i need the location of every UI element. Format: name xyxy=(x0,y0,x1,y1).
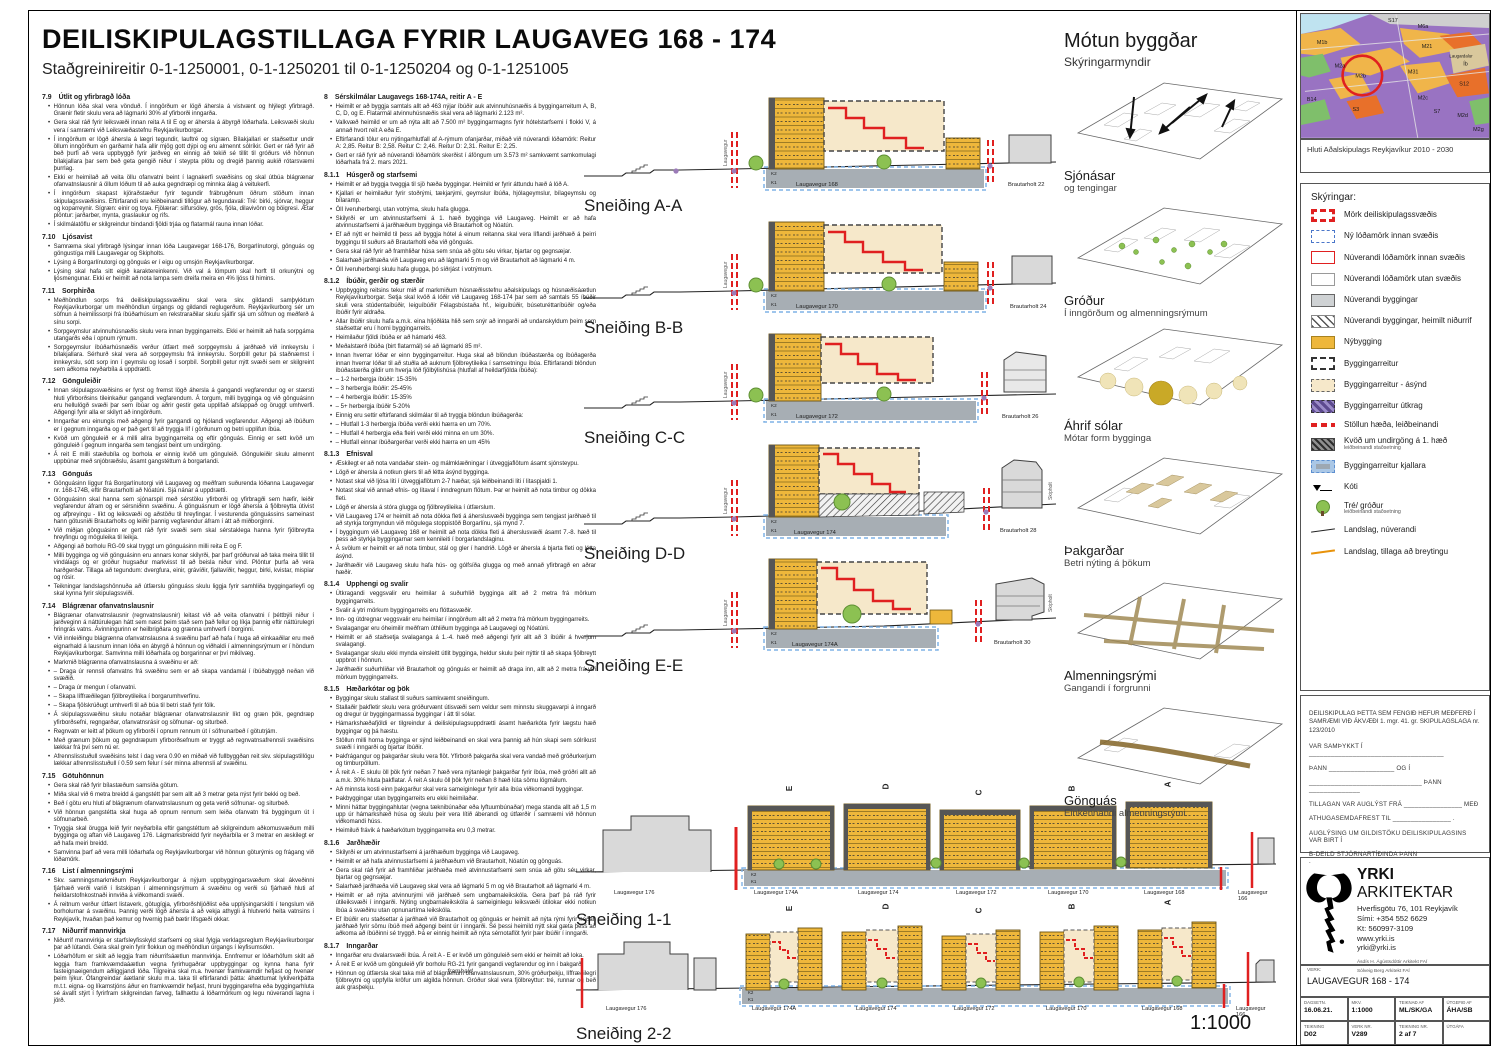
bullet-text: Gert er ráð fyrir að núverandi lóðamörk … xyxy=(336,153,596,168)
bullet-text: Þakbyggingar utan byggingarreits eru ekk… xyxy=(336,796,479,803)
cell-value: D02 xyxy=(1304,1031,1344,1038)
bullet: • Svalagangar eru óheimilir meðfram úthl… xyxy=(330,626,596,633)
regulation-section: 7.16 List í almenningsrými • Skv. samnin… xyxy=(42,868,314,924)
firm-kt: Kt: 560997-3109 xyxy=(1357,924,1483,934)
bullet: • Heimilaður fjöldi íbúða er að hámarki … xyxy=(330,335,596,342)
right-building-label: Brautarholt 28 xyxy=(1000,528,1036,534)
bullet: • Beð í götu eru hluti af blágrænum ofan… xyxy=(48,801,314,808)
section-bullets: • Gera skal ráð fyrir bílastæðum samsíða… xyxy=(42,783,314,865)
bullet-text: Heimilt er að byggja tveggja til sjö hæð… xyxy=(336,182,569,189)
section-bullets: • Niðurrif mannvirkja er starfsleyfissky… xyxy=(42,938,314,1006)
svg-text:K2: K2 xyxy=(751,872,757,877)
svg-text:K1: K1 xyxy=(751,879,757,884)
section-title: Gönguás xyxy=(62,471,92,479)
legend-label: Byggingarreitur xyxy=(1344,359,1398,368)
axonometric-view-icon xyxy=(1064,200,1290,286)
section-CC-canvas: Laugavegur K2 K1 Laugavegur 172 Brautarh… xyxy=(584,326,1056,426)
bullet: • Heimiluð frávik á hæðarkótum byggingar… xyxy=(330,828,596,835)
bullet-text: – 3 herbergja íbúðir: 25-45% xyxy=(336,386,412,393)
bullet-text: Kjallari er heimilaður fyrir stoðrými, t… xyxy=(336,191,596,206)
section-number: 8.1.1 xyxy=(324,172,339,180)
svg-text:Laugavegur: Laugavegur xyxy=(723,261,729,288)
bullet-text: Gönguásinn liggur frá Borgarlínutorgi vi… xyxy=(54,481,314,496)
title-block-cell: TEIKNAÐ AF ML/SK/GA xyxy=(1395,997,1443,1021)
bullet-text: Skilyrði er um atvinnustarfsemi á 1. hæð… xyxy=(336,216,596,231)
bullet-text: Við miðjan gönguásinn er gert ráð fyrir … xyxy=(54,528,314,543)
approval-block: DEILISKIPULAG ÞETTA SEM FENGIÐ HEFUR MEÐ… xyxy=(1300,695,1490,853)
legend-swatch-icon xyxy=(1311,273,1335,286)
section-title: Upphengi og svalir xyxy=(346,581,408,589)
legend-item: Landslag, núverandi xyxy=(1311,524,1479,537)
svg-text:K1: K1 xyxy=(771,640,777,645)
bullet-text: Inngarðar eru einungis með aðgengi fyrir… xyxy=(54,419,314,434)
bullet: • Inngarðar eru dvalarsvæði íbúa. Á reit… xyxy=(330,953,596,960)
section-number: 7.9 xyxy=(42,94,52,102)
bullet: • Gera skal ráð fyrir að framhliðar húsa… xyxy=(330,249,596,256)
section-title: Efnisval xyxy=(346,451,372,459)
section-title: Ljósavist xyxy=(62,234,92,242)
legend-label: Byggingarreitur - ásýnd xyxy=(1344,380,1427,389)
svg-text:M1b: M1b xyxy=(1317,40,1328,46)
legend-swatch-icon xyxy=(1311,400,1335,413)
svg-text:M2c: M2c xyxy=(1418,95,1429,101)
section-AA-canvas: Laugavegur K2 K1 Laugavegur 168 Brautarh… xyxy=(584,92,1056,194)
bullet-text: Á skipulagssvæðinu skulu notaðar blágræn… xyxy=(54,712,314,727)
scale-text: 1:1000 xyxy=(1190,1012,1251,1035)
svg-text:S12: S12 xyxy=(1459,81,1469,87)
section-DD-canvas: Laugavegur K2 K1 Laugavegur 174 Brautarh… xyxy=(584,440,1056,542)
approval-line: VAR SAMÞYKKT Í _________________________… xyxy=(1309,743,1481,757)
bullet: • Kjallari er heimilaður fyrir stoðrými,… xyxy=(330,191,596,206)
svg-text:Laugavegur: Laugavegur xyxy=(723,487,729,514)
bullet-text: Ef að nýtt er heimild til þess að byggja… xyxy=(336,232,596,247)
street-label: Laugavegur 168 xyxy=(796,182,838,188)
section-title: Götuhönnun xyxy=(62,773,103,781)
bullet: • Á reitnum verður útfært listaverk, göt… xyxy=(48,902,314,924)
legend-item: Nýbygging xyxy=(1311,336,1479,349)
svg-text:M21: M21 xyxy=(1422,44,1433,50)
bullet: • Blágrænar ofanvatnslausnir (regnvatnsl… xyxy=(48,613,314,635)
legend-item: Ný lóðamörk innan svæðis xyxy=(1311,230,1479,243)
bullet: • Jarðhæðir við Laugaveg skulu hafa hús-… xyxy=(330,563,596,578)
bullet-text: Sorpgeymslur íbúðarhúsnæðis verður útfær… xyxy=(54,345,314,374)
location-map: S17 M6a M1b M2a M2b M21 M31 M2c Laugarda… xyxy=(1300,13,1490,139)
bullet: • Heimilt er að byggja tveggja til sjö h… xyxy=(330,182,596,189)
legend-item: Stöllun hæða, leiðbeinandi xyxy=(1311,421,1479,429)
bullet-text: – Skapa fjölskrúðugt umhverfi til að búa… xyxy=(54,703,216,710)
zoning-map: S17 M6a M1b M2a M2b M21 M31 M2c Laugarda… xyxy=(1301,14,1489,138)
section-number: 7.17 xyxy=(42,928,55,936)
legend-swatch-icon xyxy=(1311,481,1335,494)
bullet: • Gönguásinn liggur frá Borgarlínutorgi … xyxy=(48,481,314,496)
bullet: • Salarhæð jarðhæða við Laugaveg skal ve… xyxy=(330,884,596,891)
section-bullets: • Útkragandi veggsvalir eru heimilar á s… xyxy=(324,591,596,682)
block-E xyxy=(748,806,834,870)
bullet: • Miða skal við 6 metra breidd á gangsté… xyxy=(48,792,314,799)
svg-text:K2: K2 xyxy=(771,171,777,176)
bullet-text: Lögð er áhersla á notkun glers til að lé… xyxy=(336,470,490,477)
svg-text:B14: B14 xyxy=(1307,97,1317,103)
bullet-text: Kvöð um gönguleið er á milli allra byggi… xyxy=(54,436,314,451)
bullet: • Samræma skal yfirbragð lýsingar innan … xyxy=(48,244,314,259)
right-building-label: Brautarholt 30 xyxy=(994,640,1030,646)
bullet: • Svalagangar skulu ekki mynda einsleitt… xyxy=(330,651,596,666)
legend-item: Byggingarreitur kjallara xyxy=(1311,460,1479,473)
legend-swatch-icon xyxy=(1311,357,1335,370)
bullet-text: Samvinna þarf að vera milli lóðarhafa og… xyxy=(54,850,314,865)
section-title: Sérskilmálar Laugavegs 168-174A, reitir … xyxy=(335,94,482,102)
right-building-label: Brautarholt 26 xyxy=(1002,414,1038,420)
bullet-text: Gera skal ráð fyrir leiksvæði innan reit… xyxy=(54,120,314,135)
bullet: • Á reit E milli stæðubíla og borhola er… xyxy=(48,452,314,467)
svg-text:K2: K2 xyxy=(771,631,777,636)
legend-swatch-icon xyxy=(1311,524,1335,537)
bullet-text: Hönnun lóða skal vera vönduð. Í inngörðu… xyxy=(54,104,314,119)
street-label: Laugavegur 174A xyxy=(792,642,838,648)
bullet-text: Teikningar landslagshönnuða að útfærslu … xyxy=(54,584,314,599)
bullet: • Heimilt er að nýta atvinnurými við jar… xyxy=(330,893,596,915)
bullet: • Lýsing á Borgarlínutorgi og gönguás er… xyxy=(48,260,314,267)
legend-item: Tré/ gróður leiðbeinandi staðsetning xyxy=(1311,502,1479,516)
legend-item: Núverandi byggingar, heimilt niðurrif xyxy=(1311,315,1479,328)
project-name-row: VERK: LAUGAVEGUR 168 - 174 xyxy=(1300,965,1490,997)
bullet-text: Á reitnum verður útfært listaverk, götug… xyxy=(54,902,314,924)
svg-text:K2: K2 xyxy=(771,403,777,408)
firm-name-bold: YRKI xyxy=(1357,866,1394,883)
section-number: 7.10 xyxy=(42,234,55,242)
svg-text:Laugavegur: Laugavegur xyxy=(723,371,729,398)
svg-text:K1: K1 xyxy=(771,302,777,307)
bullet-text: Ef íbúðir eru staðsettar á jarðhæð við B… xyxy=(336,917,596,939)
bullet: • Allar íbúðir skulu hafa a.m.k. eina hl… xyxy=(330,319,596,334)
section-label: Sneiðing 2-2 xyxy=(576,1024,1276,1044)
legend-label: Landslag, tillaga að breytingu xyxy=(1344,547,1448,556)
regulation-section: 7.10 Ljósavist • Samræma skal yfirbragð … xyxy=(42,234,314,284)
bullet: • – Hlutfall 1-3 herbergja íbúða verði e… xyxy=(330,422,596,429)
bullet-text: – Draga úr rennsli ofanvatns frá svæðinu… xyxy=(54,669,314,684)
cell-label: DAGSETN. xyxy=(1304,1000,1344,1005)
bullet: • Notast skal við annað efnis- og litava… xyxy=(330,488,596,503)
bullet: • Teikningar landslagshönnuða að útfærsl… xyxy=(48,584,314,599)
bullet-text: Lýsing skal hafa sitt eigið karaktereink… xyxy=(54,269,314,284)
bullet: • – Draga úr rennsli ofanvatns frá svæði… xyxy=(48,669,314,684)
title-block-cell: ÚTGEFIÐ AF ÁHA/SB xyxy=(1443,997,1491,1021)
street-label: Laugavegur 174 xyxy=(794,530,837,536)
section-title: Niðurrif mannvirkja xyxy=(62,928,125,936)
bullet: • – Hlutfall einnar íbúðargerðar verði e… xyxy=(330,440,596,447)
section-number: 7.12 xyxy=(42,378,55,386)
legend-label: Byggingarreitur útkrag xyxy=(1344,401,1423,410)
section-title: Inngarðar xyxy=(346,943,378,951)
legend-title: Skýringar: xyxy=(1311,192,1479,203)
bullet-text: – Draga úr mengun í ofanvatni. xyxy=(54,685,137,692)
block-C xyxy=(940,810,1020,870)
bullet: • Afrennslisstuðull svæðisins telst í da… xyxy=(48,754,314,769)
bullet-text: Lögð er áhersla á stóra glugga og fjölbr… xyxy=(336,505,495,512)
firm-address: Hverfisgötu 76, 101 Reykjavík xyxy=(1357,904,1483,914)
title-block-grid: DAGSETN. 16.06.21. MKV. 1:1000 TEIKNAÐ A… xyxy=(1300,997,1490,1045)
bullet-text: Minni háttar byggingahlutar (vegna tækni… xyxy=(336,805,596,827)
bullet-text: Hámarkshæðafjöldi er tilgreindur á deili… xyxy=(336,721,596,736)
bullet-text: Öll íveruherbergi, utan votrýma, skulu h… xyxy=(336,207,470,214)
cell-label: TEIKNING xyxy=(1304,1024,1344,1029)
bullet: • Stallaðir þakfletir skulu vera gróðurv… xyxy=(330,705,596,720)
diagram-grodur: Gróður Í inngörðum og almenningsrýmum xyxy=(1064,200,1290,319)
legend-label: Núverandi byggingar xyxy=(1344,295,1418,304)
section-number: 8.1.7 xyxy=(324,943,339,951)
legend-item: Núverandi lóðamörk utan svæðis xyxy=(1311,273,1479,286)
bullet: • Uppbygging reitsins tekur mið af markm… xyxy=(330,288,596,317)
bullet-text: Heimilt er að byggja samtals allt að 463… xyxy=(336,104,596,119)
section-drawing-AA: Laugavegur K2 K1 Laugavegur 168 Brautarh… xyxy=(584,92,1056,216)
bullet: • Byggingar skulu stallast til suðurs sa… xyxy=(330,696,596,703)
section-number: 7.11 xyxy=(42,288,55,296)
firm-block: YRKI ARKITEKTAR Hverfisgötu 76, 101 Reyk… xyxy=(1300,857,1490,965)
bullet: • Ekki er heimilað að veita öllu ofanvat… xyxy=(48,175,314,190)
bullet: • – Draga úr mengun í ofanvatni. xyxy=(48,685,314,692)
section-bullets: • Skilyrði er um atvinnustarfsemi á jarð… xyxy=(324,850,596,939)
regulation-section: 8 Sérskilmálar Laugavegs 168-174A, reiti… xyxy=(324,94,596,168)
bullet-text: – Skapa líffræðilegan fjölbreytileika í … xyxy=(54,694,201,701)
legend-swatch-icon xyxy=(1311,502,1335,515)
axonometric-view-icon xyxy=(1064,450,1290,536)
legend-note: leiðbeinandi staðsetning xyxy=(1344,446,1447,452)
bullet-text: Meðhöndlun sorps frá deiliskipulagssvæði… xyxy=(54,298,314,327)
bullet-text: Gera skal ráð fyrir að framhliðar húsa s… xyxy=(336,249,572,256)
bullet: • Meðalstærð íbúða (birt flatarmál) sé a… xyxy=(330,344,596,351)
bullet-text: Afrennslisstuðull svæðisins telst í dag … xyxy=(54,754,314,769)
bullet-text: Jarðhæðir suðurhliðar við Brautarholt og… xyxy=(336,667,596,682)
svg-text:Íb: Íb xyxy=(1463,61,1468,68)
section-EE-canvas: Laugavegur K2 K1 Laugavegur 174A Brautar… xyxy=(584,554,1056,654)
page-title: DEILISKIPULAGSTILLAGA FYRIR LAUGAVEG 168… xyxy=(42,24,942,55)
legend-item: Byggingarreitur útkrag xyxy=(1311,400,1479,413)
approval-line: ATHUGASEMDAFREST TIL ________________ . xyxy=(1309,815,1481,822)
legend-item: Kóti xyxy=(1311,481,1479,494)
bullet-text: Ekki er heimilað að veita öllu ofanvatni… xyxy=(54,175,314,190)
bullet-text: Jarðhæðir við Laugaveg skulu hafa hús- o… xyxy=(336,563,596,578)
legend-swatch-icon xyxy=(1311,438,1335,451)
section-number: 8.1.3 xyxy=(324,451,339,459)
cell-label: MKV. xyxy=(1352,1000,1392,1005)
bullet-text: Svalir á ytri mörkum byggingarreits eru … xyxy=(336,608,473,615)
regulation-section: 7.13 Gönguás • Gönguásinn liggur frá Bor… xyxy=(42,471,314,599)
legend-label: Byggingarreitur kjallara xyxy=(1344,461,1426,470)
regulation-section: 7.17 Niðurrif mannvirkja • Niðurrif mann… xyxy=(42,928,314,1006)
bullet: • – 5+ herbergja íbúðir 5-20% xyxy=(330,404,596,411)
bullet-text: Heimilaður fjöldi íbúða er að hámarki 46… xyxy=(336,335,447,342)
section-drawing-BB: Laugavegur K2 K1 Laugavegur 170 Brautarh… xyxy=(584,214,1056,338)
svg-text:M31: M31 xyxy=(1408,70,1419,76)
bullet-text: Uppbygging reitsins tekur mið af markmið… xyxy=(336,288,596,317)
section-BB-canvas: Laugavegur K2 K1 Laugavegur 170 Brautarh… xyxy=(584,214,1056,316)
bullet: • Á svölum er heimilt er að nota timbur,… xyxy=(330,546,596,561)
legend-item: Kvöð um undirgöng á 1. hæð leiðbeinandi … xyxy=(1311,437,1479,451)
svg-text:K1: K1 xyxy=(771,528,777,533)
section-bullets: • Byggingar skulu stallast til suðurs sa… xyxy=(324,696,596,836)
legend-item: Mörk deiliskipulagssvæðis xyxy=(1311,209,1479,222)
cell-label: TEIKNAÐ AF xyxy=(1399,1000,1439,1005)
bullet-text: Sorpgeymslur atvinnuhúsnæðis skulu vera … xyxy=(54,329,314,344)
bullet: • Valkvæð heimild er um að nýta allt að … xyxy=(330,120,596,135)
panel-divider xyxy=(1296,10,1297,1046)
bullet-text: Byggingar skulu stallast til suðurs samk… xyxy=(336,696,490,703)
cell-label: ÚTGEFIÐ AF xyxy=(1447,1000,1487,1005)
bullet: • Lögð er áhersla á stóra glugga og fjöl… xyxy=(330,505,596,512)
section-bullets: • Blágrænar ofanvatnslausnir (regnvatnsl… xyxy=(42,613,314,769)
block-D xyxy=(844,804,930,870)
bullet: • Lýsing skal hafa sitt eigið karakterei… xyxy=(48,269,314,284)
section-title: Útlit og yfirbragð lóða xyxy=(59,94,131,102)
diagram-thakgardar: Þakgarðar Betri nýting á þökum xyxy=(1064,450,1290,569)
bullet: • Niðurrif mannvirkja er starfsleyfissky… xyxy=(48,938,314,953)
bullet: • Ef íbúðir eru staðsettar á jarðhæð við… xyxy=(330,917,596,939)
bullet: • Sorpgeymslur atvinnuhúsnæðis skulu ver… xyxy=(48,329,314,344)
firm-web: www.yrki.is xyxy=(1357,934,1483,944)
bullet-text: Á reit E milli stæðubíla og borhola er e… xyxy=(54,452,314,467)
bullet: • Í skilmálatöflu er skilgreindur bindan… xyxy=(48,222,314,229)
bullet: • Inngarðar eru einungis með aðgengi fyr… xyxy=(48,419,314,434)
bullet: • Við Laugaveg 174 er heimilt að nota dö… xyxy=(330,514,596,529)
firm-email: yrki@yrki.is xyxy=(1357,943,1483,953)
continued-note: framhald xyxy=(324,968,596,975)
bullet: • Innan hverrar lóðar er einn byggingarr… xyxy=(330,353,596,375)
section-number: 8.1.4 xyxy=(324,581,339,589)
axonometric-view-icon xyxy=(1064,700,1290,786)
legend-item: Byggingarreitur xyxy=(1311,357,1479,370)
cell-value: V289 xyxy=(1352,1031,1392,1038)
bullet: • Með grænum þökum og gegndræpum yfirbor… xyxy=(48,738,314,753)
bullet: • Þakbyggingar utan byggingarreits eru e… xyxy=(330,796,596,803)
bullet: • Einnig eru settir eftirfarandi skilmál… xyxy=(330,413,596,420)
legend-label: Landslag, núverandi xyxy=(1344,525,1416,534)
bullet-text: Niðurrif mannvirkja er starfsleyfisskyld… xyxy=(54,938,314,953)
drawing-sheet: DEILISKIPULAGSTILLAGA FYRIR LAUGAVEG 168… xyxy=(0,0,1500,1060)
legend-swatch-icon xyxy=(1311,230,1335,243)
page-subtitle: Staðgreinireitir 0-1-1250001, 0-1-125020… xyxy=(42,61,942,79)
legend-swatch-icon xyxy=(1311,251,1335,264)
axonometric-view-icon xyxy=(1064,325,1290,411)
section-label: Sneiðing E-E xyxy=(584,656,1056,676)
bullet-text: Útkragandi veggsvalir eru heimilar á suð… xyxy=(336,591,596,606)
bullet: • Salarhæð jarðhæða við Laugaveg eru að … xyxy=(330,258,596,265)
bullet: • Í byggingum við Laugaveg 168 er heimil… xyxy=(330,530,596,545)
approval-line: AUGLÝSING UM GILDISTÖKU DEILISKIPULAGSIN… xyxy=(1309,830,1481,844)
bullet-text: Æskilegt er að nota vandaðar stein- og m… xyxy=(336,461,579,468)
bullet: • Skv. samningsmarkmiðum Reykjavíkurborg… xyxy=(48,878,314,900)
svg-text:K1: K1 xyxy=(748,997,754,1002)
bullet: • – 4 herbergja íbúðir: 15-35% xyxy=(330,395,596,402)
section-number: 7.13 xyxy=(42,471,55,479)
legend-swatch-icon xyxy=(1311,545,1335,558)
bullet-text: Þakfrágangur og þakgarðar skulu vera flö… xyxy=(336,754,596,769)
legend-swatch-icon xyxy=(1311,460,1335,473)
cell-label: TEIKNING NR. xyxy=(1399,1024,1439,1029)
bullet: • Tryggja skal örugga leið fyrir neyðarb… xyxy=(48,826,314,848)
bullet-text: Meðalstærð íbúða (birt flatarmál) sé að … xyxy=(336,344,482,351)
regulation-section: 8.1.5 Hæðarkótar og þök • Byggingar skul… xyxy=(324,686,596,836)
bullet: • – Skapa líffræðilegan fjölbreytileika … xyxy=(48,694,314,701)
bullet-text: – Hlutfall 1-3 herbergja íbúða verði ekk… xyxy=(336,422,492,429)
bullet: • Meðhöndlun sorps frá deiliskipulagssvæ… xyxy=(48,298,314,327)
bullet: • Eftirfarandi tölur eru nýtingarhlutfal… xyxy=(330,137,596,152)
bullet: • Gert er ráð fyrir að núverandi lóðamör… xyxy=(330,153,596,168)
verk-value: LAUGAVEGUR 168 - 174 xyxy=(1307,976,1483,986)
bullet: • Notast skal við ljósa liti í útveggjaf… xyxy=(330,479,596,486)
bullet-text: Gera skal ráð fyrir að framhliðar jarðhæ… xyxy=(336,868,596,883)
bullet: • Á reit A - E skulu öll þök fyrir neðan… xyxy=(330,770,596,785)
bullet-text: Miða skal við 6 metra breidd á gangstétt… xyxy=(54,792,300,799)
bullet: • Jarðhæðir suðurhliðar við Brautarholt … xyxy=(330,667,596,682)
bullet-text: Eftirfarandi tölur eru nýtingarhlutfall … xyxy=(336,137,596,152)
bullet: • Hönnun lóða skal vera vönduð. Í inngör… xyxy=(48,104,314,119)
far-right-street-label: Skipholt xyxy=(1048,482,1054,500)
bullet-text: Í byggingum við Laugaveg 168 er heimilt … xyxy=(336,530,596,545)
axonometric-view-icon xyxy=(1064,75,1290,161)
approval-lines: VAR SAMÞYKKT Í _________________________… xyxy=(1309,743,1481,865)
section-title: List í almenningsrými xyxy=(62,868,133,876)
bullet-text: Heimilt er að nýta atvinnurými við jarðh… xyxy=(336,893,596,915)
section-bullets: • Æskilegt er að nota vandaðar stein- og… xyxy=(324,461,596,577)
street-label: Laugavegur 170 xyxy=(796,304,838,310)
bullet-text: – Hlutfall 4 herbergja eða fleiri verði … xyxy=(336,431,494,438)
bullet-text: – 1-2 herbergja íbúðir: 15-35% xyxy=(336,377,417,384)
section-drawing-22: K2 K1 E D C B A Laugavegur 176 Laugavegu… xyxy=(576,908,1276,1044)
motun-subtitle: Skýringarmyndir xyxy=(1064,55,1290,69)
bullet-text: Lóðarhöfum er skilt að leggja fram niður… xyxy=(54,954,314,1005)
bullet-text: Innan skipulagssvæðisins er fyrst og fre… xyxy=(54,388,314,417)
regulation-section: 8.1.1 Húsgerð og starfsemi • Heimilt er … xyxy=(324,172,596,274)
section-bullets: • Heimilt er að byggja samtals allt að 4… xyxy=(324,104,596,168)
section-title: Húsgerð og starfsemi xyxy=(346,172,417,180)
bullet-text: Tryggja skal örugga leið fyrir neyðarbíl… xyxy=(54,826,314,848)
section-bullets: • Skv. samningsmarkmiðum Reykjavíkurborg… xyxy=(42,878,314,924)
svg-text:S3: S3 xyxy=(1352,107,1359,113)
section-bullets: • Heimilt er að byggja tveggja til sjö h… xyxy=(324,182,596,274)
regulation-section: 7.9 Útlit og yfirbragð lóða • Hönnun lóð… xyxy=(42,94,314,230)
bullet-text: Að minnsta kosti einn þakgarður skal ver… xyxy=(336,787,584,794)
bullet-text: Stöllun milli horna bygginga er sýnd lei… xyxy=(336,738,596,753)
bullet-text: Lýsing á Borgarlínutorgi og gönguás er í… xyxy=(54,260,255,267)
bullet: • Í inngörðum skapast kjöraðstæður fyrir… xyxy=(48,191,314,220)
bullet-text: Markmið blágrænna ofanvatnslausna á svæð… xyxy=(54,660,199,667)
header: DEILISKIPULAGSTILLAGA FYRIR LAUGAVEG 168… xyxy=(42,24,942,79)
bullet: • Heimilt er að hafa atvinnustarfsemi á … xyxy=(330,859,596,866)
bullet: • Öll íveruherbergi skulu hafa glugga, þ… xyxy=(330,267,596,274)
legend-swatch-icon xyxy=(1311,336,1335,349)
legend-label: Stöllun hæða, leiðbeinandi xyxy=(1344,420,1438,429)
svg-text:K2: K2 xyxy=(748,990,754,995)
street-left-label: Laugavegur xyxy=(723,139,729,166)
verk-label: VERK: xyxy=(1307,968,1483,973)
legend-label: Ný lóðamörk innan svæðis xyxy=(1344,231,1438,240)
section-title: Jarðhæðir xyxy=(346,840,380,848)
section-drawing-EE: Laugavegur K2 K1 Laugavegur 174A Brautar… xyxy=(584,554,1056,676)
bullet: • Hámarkshæðafjöldi er tilgreindur á dei… xyxy=(330,721,596,736)
bullet: • – Skapa fjölskrúðugt umhverfi til að b… xyxy=(48,703,314,710)
legend-label: Kóti xyxy=(1344,482,1358,491)
bullet: • Minni háttar byggingahlutar (vegna tæk… xyxy=(330,805,596,827)
section-title: Gönguleiðir xyxy=(62,378,101,386)
svg-text:M2a: M2a xyxy=(1335,64,1347,70)
section-bullets: • Gönguásinn liggur frá Borgarlínutorgi … xyxy=(42,481,314,599)
section-title: Íbúðir, gerðir og stærðir xyxy=(346,278,424,286)
section-drawing-CC: Laugavegur K2 K1 Laugavegur 172 Brautarh… xyxy=(584,326,1056,448)
bullet: • Regnvatn er leitt af þökum og yfirborð… xyxy=(48,729,314,736)
map-caption: Hluti Aðalskipulags Reykjavíkur 2010 - 2… xyxy=(1300,139,1490,173)
bullet-text: Skv. samningsmarkmiðum Reykjavíkurborgar… xyxy=(54,878,314,900)
bullet-text: Regnvatn er leitt af þökum og yfirborði … xyxy=(54,729,277,736)
